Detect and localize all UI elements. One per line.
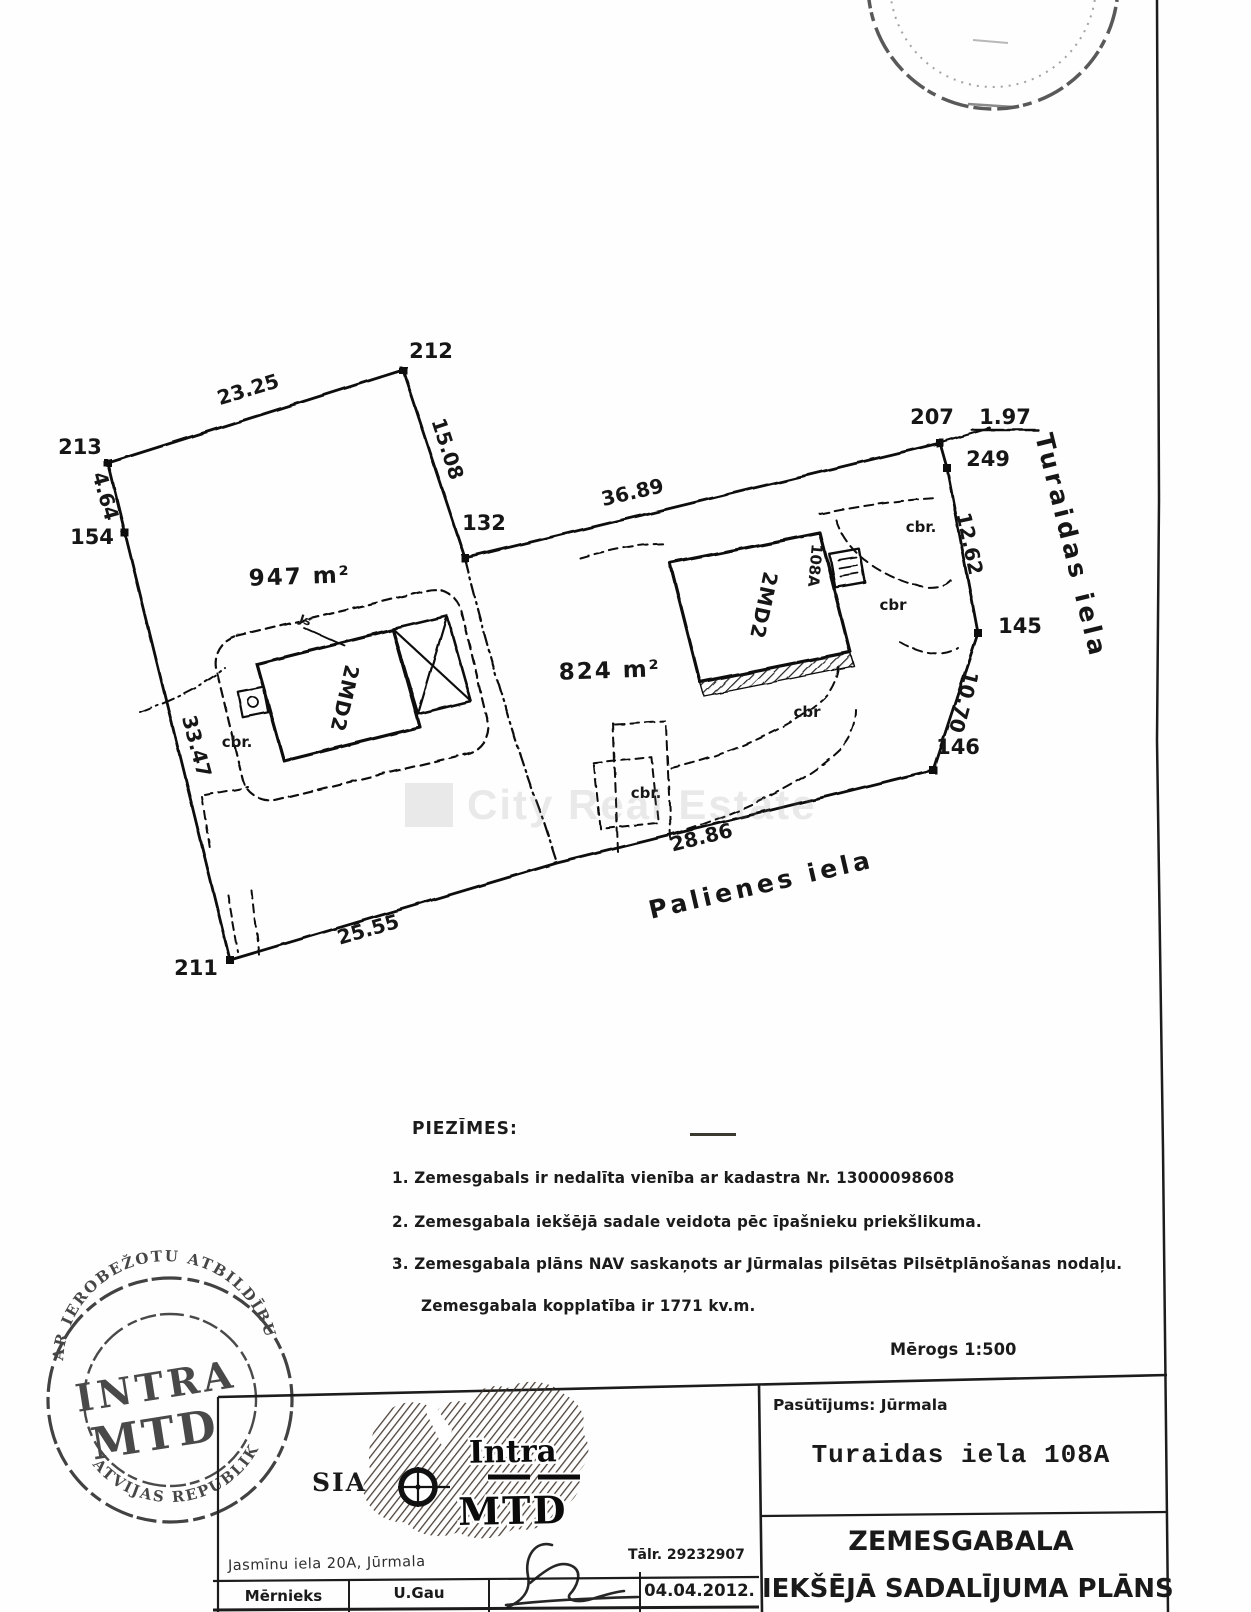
dim-25-55: 25.55	[334, 909, 401, 950]
surveyor-signature	[506, 1544, 638, 1607]
surveyor-name: U.Gau	[349, 1584, 489, 1602]
note-total-area: Zemesgabala kopplatība ir 1771 kv.m.	[421, 1296, 755, 1315]
house-number-108a: 108A	[804, 543, 826, 588]
notes-dash	[690, 1133, 736, 1136]
point-213: 213	[58, 435, 102, 459]
scale-label: Mērogs 1:500	[890, 1340, 1017, 1360]
dashed-path-left	[202, 787, 259, 955]
top-stamp	[868, 0, 1118, 109]
stamp-mark	[973, 40, 1008, 43]
point-211: 211	[174, 956, 218, 980]
point-132: 132	[462, 511, 506, 535]
dashed-g	[580, 544, 668, 558]
company-phone: Tālr. 29232907	[628, 1547, 745, 1563]
surveyor-label: Mērnieks	[218, 1587, 349, 1605]
street-palienes: Palienes iela	[646, 845, 877, 925]
logo-text-mtd: MTD	[458, 1487, 568, 1534]
company-stamp: AR IEROBEŽOTU ATBILDĪBU LATVIJAS REPUBLI…	[0, 0, 304, 1540]
plan-title-line1: ZEMESGABALA	[762, 1526, 1160, 1557]
point-154: 154	[70, 525, 114, 549]
service-line	[303, 627, 345, 646]
point-207: 207	[910, 405, 954, 429]
survey-date: 04.04.2012.	[640, 1581, 759, 1600]
dim-1-97: 1.97	[979, 405, 1031, 429]
area-label-right: 824 m²	[558, 656, 661, 686]
titleblock-top-line	[218, 1375, 1167, 1397]
point-145: 145	[998, 614, 1042, 638]
js-label: Js	[297, 611, 313, 628]
point-212: 212	[409, 339, 453, 363]
rightblock-divider	[762, 1512, 1167, 1516]
building-left-porch	[238, 687, 268, 717]
note-item-2: 2. Zemesgabala iekšējā sadale veidota pē…	[392, 1212, 982, 1231]
dim-23-25: 23.25	[214, 369, 282, 410]
point-146: 146	[936, 735, 980, 759]
stamp-arc-bottom-text: LATVIJAS REPUBLIKA	[0, 0, 267, 1524]
dim-10-70: 10.70	[944, 668, 984, 735]
stamp-arc-top-text: AR IEROBEŽOTU ATBILDĪBU	[38, 1236, 280, 1364]
building-right-annex	[829, 549, 864, 588]
crosshair-dot	[415, 1484, 420, 1489]
page-right-border	[1157, 0, 1168, 1612]
cbr-label-1: cbr.	[906, 518, 937, 536]
note-item-1: 1. Zemesgabals ir nedalīta vienība ar ka…	[392, 1168, 955, 1187]
notes-heading: PIEZĪMES:	[412, 1118, 518, 1139]
watermark-logo-icon	[405, 783, 453, 827]
dim-12-62: 12.62	[952, 510, 989, 577]
logo-text-intra: Intra	[469, 1433, 557, 1471]
object-address: Turaidas iela 108A	[762, 1440, 1160, 1470]
watermark: City Real Estate	[405, 781, 816, 829]
cbr-label-3: cbr	[793, 703, 821, 721]
dashed-a	[820, 498, 938, 514]
dim-36-89: 36.89	[599, 473, 666, 511]
area-label-left: 947 m²	[248, 562, 351, 592]
dashdot-left	[140, 668, 225, 712]
plan-title-line2: IEKŠĒJĀ SADALĪJUMA PLĀNS	[762, 1574, 1160, 1604]
dim-4-64: 4.64	[87, 469, 124, 523]
dim-15-08: 15.08	[426, 415, 468, 483]
order-label: Pasūtījums: Jūrmala	[773, 1396, 948, 1414]
titleblock-bottom-line	[213, 1607, 759, 1610]
note-item-3: 3. Zemesgabala plāns NAV saskaņots ar Jū…	[392, 1254, 1122, 1273]
cbr-label-2: cbr	[879, 596, 907, 614]
scanned-land-plan-document: 212 213 154 132 207 1.97 249 145 146 211…	[0, 0, 1251, 1612]
watermark-text: City Real Estate	[467, 781, 816, 829]
cbr-label-5: cbr.	[222, 733, 253, 751]
company-prefix-sia: SIA	[312, 1468, 367, 1497]
point-249: 249	[966, 447, 1010, 471]
company-logo: Intra MTD	[363, 1382, 589, 1539]
dashed-c	[900, 642, 958, 654]
